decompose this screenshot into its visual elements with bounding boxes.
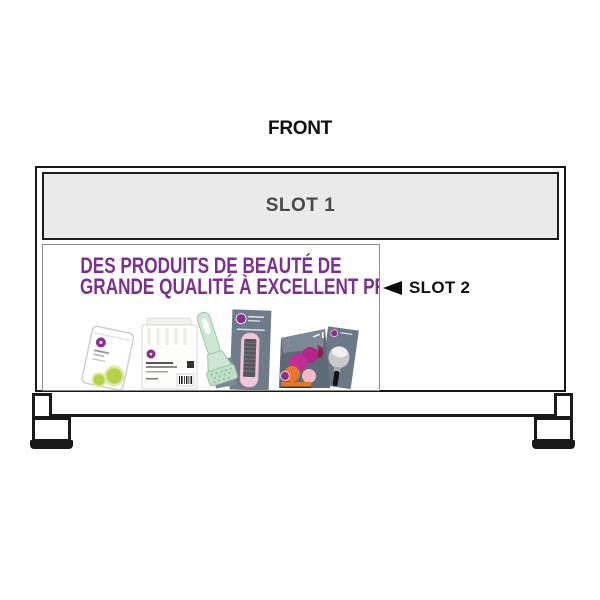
cotton-pads-pack-icon: [142, 318, 197, 389]
slot2-ad-panel: DES PRODUITS DE BEAUTÉ DE GRANDE QUALITÉ…: [42, 244, 380, 391]
table-foot-left: [32, 417, 71, 442]
ad-headline: DES PRODUITS DE BEAUTÉ DE GRANDE QUALITÉ…: [43, 255, 379, 297]
planogram-diagram: FRONT SLOT 1 DES PRODUITS DE BEAUTÉ DE G…: [0, 0, 600, 600]
slot2-callout: SLOT 2: [383, 278, 470, 298]
white-sachet-pouch-icon: [81, 325, 134, 390]
table-foot-right: [534, 417, 573, 442]
table-leg-upper-left: [32, 393, 52, 419]
slot2-label: SLOT 2: [409, 278, 470, 298]
front-label: FRONT: [0, 118, 600, 140]
table-apron-rail: [50, 392, 556, 417]
makeup-sponges-pouch-icon: [279, 329, 330, 388]
slot1-area: SLOT 1: [42, 172, 559, 240]
table-foot-pad-left: [30, 440, 73, 449]
ad-headline-line2: GRANDE QUALITÉ À EXCELLENT PRIX: [80, 276, 342, 297]
slot1-label: SLOT 1: [266, 195, 336, 217]
table-leg-upper-right: [554, 393, 573, 419]
display-fixture-front: SLOT 1 DES PRODUITS DE BEAUTÉ DE GRANDE …: [35, 166, 566, 392]
left-arrow-icon: [383, 281, 402, 295]
ad-headline-line1: DES PRODUITS DE BEAUTÉ DE: [80, 255, 342, 276]
table-foot-pad-right: [532, 440, 575, 449]
